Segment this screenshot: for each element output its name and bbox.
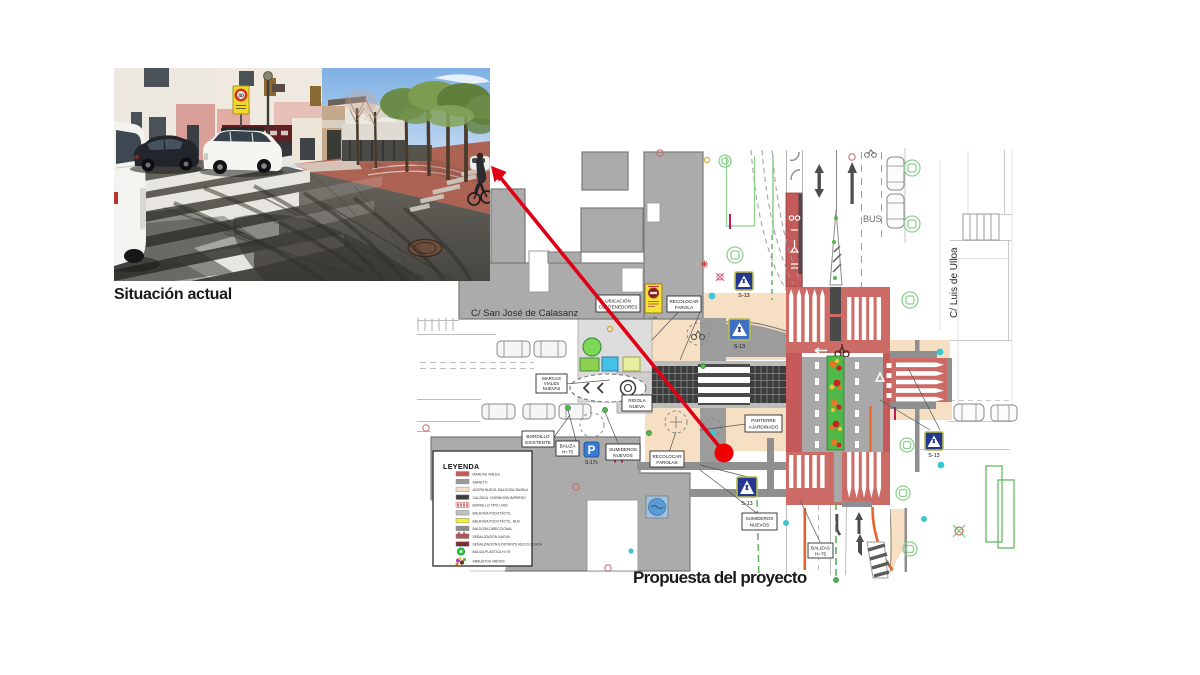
svg-text:S-17c: S-17c (585, 460, 599, 466)
svg-text:C/ San José de Calasanz: C/ San José de Calasanz (471, 308, 578, 319)
svg-text:C/ Luis de Ulloa: C/ Luis de Ulloa (949, 247, 960, 318)
svg-text:CALZADA. HORMIGÓN IMPRESO: CALZADA. HORMIGÓN IMPRESO (473, 495, 526, 500)
svg-text:SUMIDEROS: SUMIDEROS (609, 447, 637, 452)
svg-text:SEÑALIZACIÓN NUEVA: SEÑALIZACIÓN NUEVA (473, 534, 511, 539)
svg-text:BALIZA: BALIZA (560, 444, 577, 449)
svg-text:H=75: H=75 (815, 552, 827, 557)
svg-text:SEÑALIZACIÓN EXISTENTE RECOLOC: SEÑALIZACIÓN EXISTENTE RECOLOCADA (473, 542, 543, 547)
svg-text:S-13: S-13 (734, 344, 745, 350)
svg-text:BALIZA PLÁSTICA H=75: BALIZA PLÁSTICA H=75 (473, 550, 511, 554)
svg-text:H=75: H=75 (562, 450, 574, 455)
svg-text:PARTERRE: PARTERRE (751, 418, 776, 423)
svg-text:ACERA NUEVA. BALDOSA 30x30x4: ACERA NUEVA. BALDOSA 30x30x4 (473, 488, 528, 492)
svg-text:NUEVOS: NUEVOS (613, 453, 632, 458)
svg-text:Propuesta del proyecto: Propuesta del proyecto (633, 568, 807, 587)
svg-text:FAROLA: FAROLA (675, 305, 694, 310)
svg-text:Situación actual: Situación actual (114, 286, 232, 303)
svg-text:BALDOSA DIRECCIONAL: BALDOSA DIRECCIONAL (473, 527, 513, 531)
svg-text:BUS: BUS (863, 214, 882, 224)
svg-text:S-13: S-13 (741, 501, 752, 507)
svg-text:MARCAS VIALES: MARCAS VIALES (473, 473, 501, 477)
svg-text:RECOLOCAR: RECOLOCAR (669, 299, 699, 304)
svg-text:P: P (588, 445, 596, 457)
svg-text:BORDILLO: BORDILLO (526, 434, 550, 439)
svg-text:BALDOSA PODOTÁCTIL. BUS: BALDOSA PODOTÁCTIL. BUS (473, 519, 521, 523)
svg-text:EXISTENTE: EXISTENTE (525, 440, 551, 445)
svg-text:ASFALTO: ASFALTO (473, 480, 488, 484)
svg-text:S-13: S-13 (928, 453, 939, 459)
svg-text:BALDOSA PODOTÁCTIL: BALDOSA PODOTÁCTIL (473, 512, 512, 516)
svg-text:C-96: C-96 (649, 316, 657, 320)
svg-text:RIGOLA: RIGOLA (628, 398, 646, 403)
svg-text:NUEVOS: NUEVOS (750, 523, 769, 528)
svg-text:LEYENDA: LEYENDA (443, 462, 479, 471)
svg-text:NUEVA: NUEVA (629, 404, 645, 409)
svg-text:RECOLOCAR: RECOLOCAR (652, 454, 682, 459)
svg-text:BALIZAS: BALIZAS (811, 546, 830, 551)
svg-text:NUEVAS: NUEVAS (543, 386, 561, 391)
svg-text:FAROLAS: FAROLAS (656, 460, 677, 465)
svg-text:BORDILLO TIPO U420: BORDILLO TIPO U420 (473, 504, 508, 508)
svg-text:ARBUSTOS VARIOS: ARBUSTOS VARIOS (473, 560, 506, 564)
svg-text:30: 30 (238, 94, 244, 100)
svg-text:S-13: S-13 (738, 293, 749, 299)
svg-text:UBICACIÓN: UBICACIÓN (605, 298, 631, 304)
svg-text:AJARDINADO: AJARDINADO (749, 425, 779, 430)
svg-text:SUMIDEROS: SUMIDEROS (746, 516, 774, 521)
